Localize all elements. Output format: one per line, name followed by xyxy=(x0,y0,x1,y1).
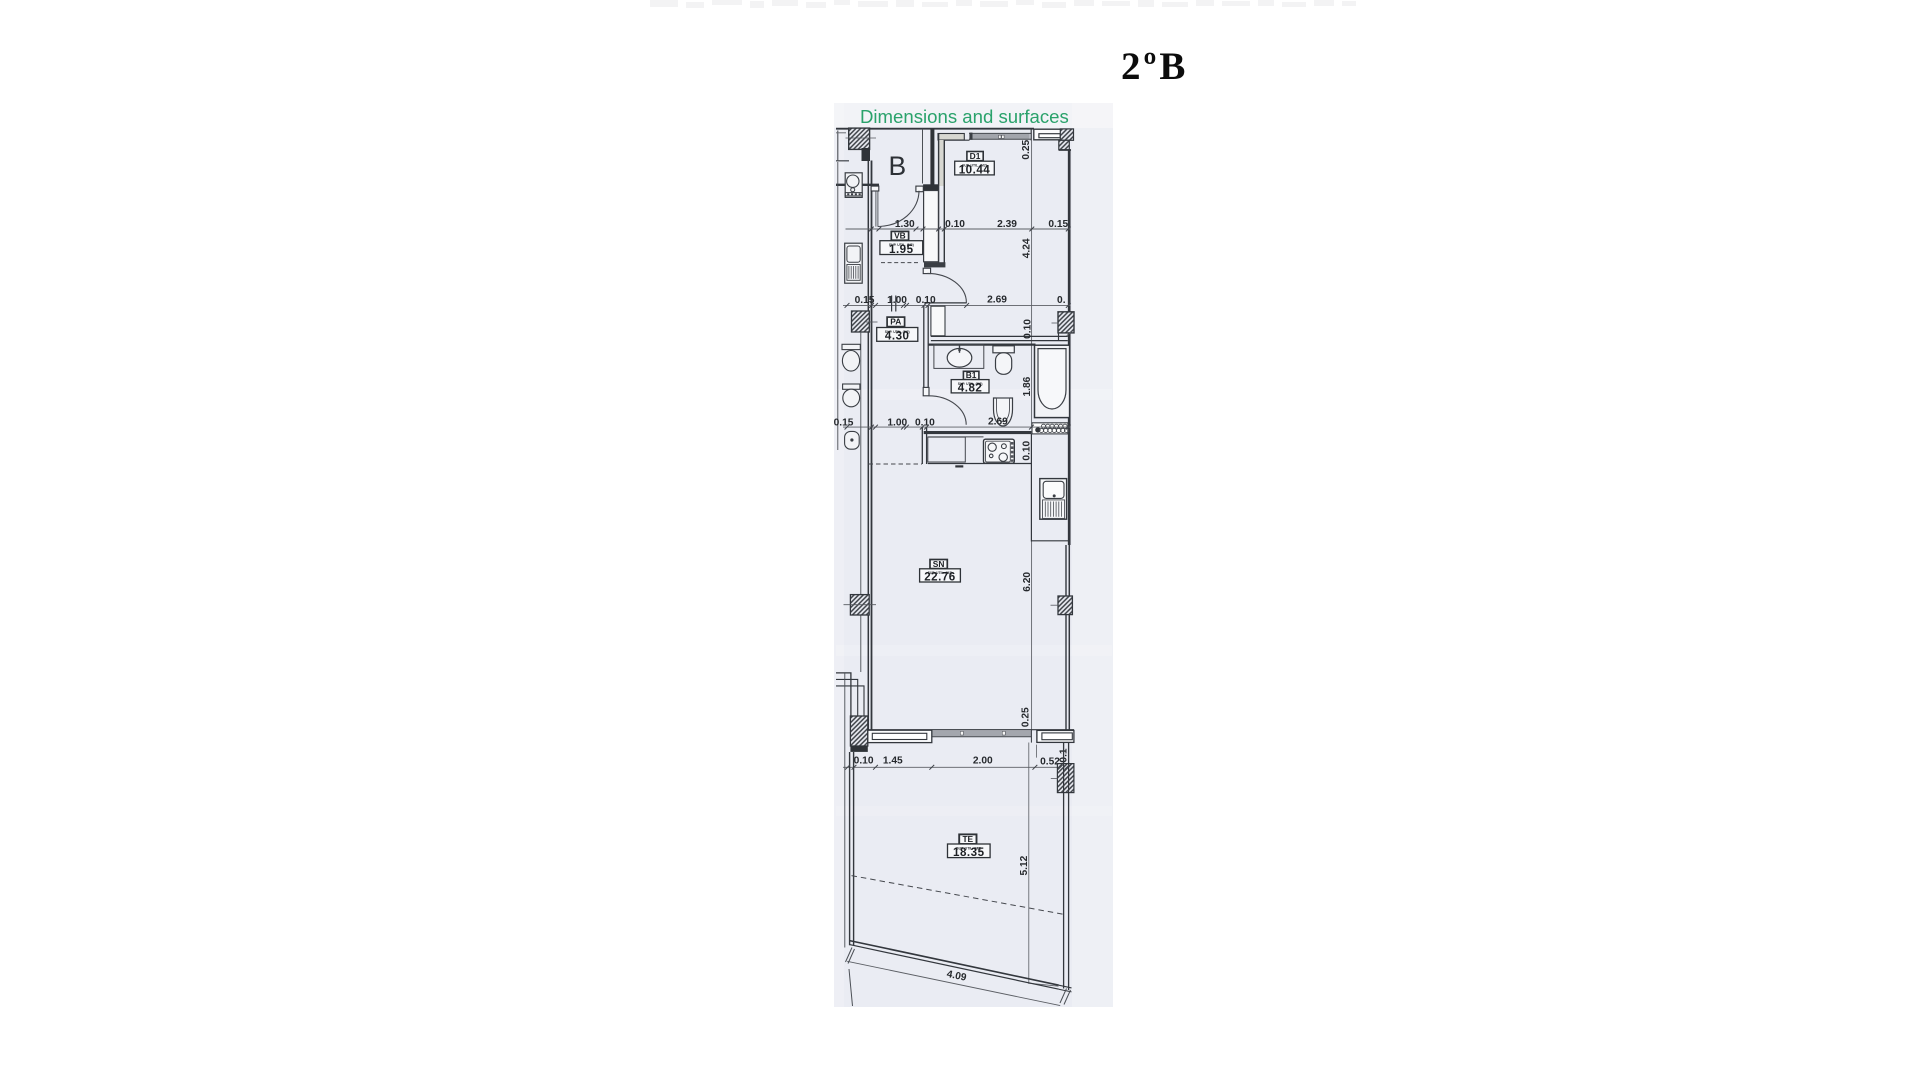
svg-text:2.00: 2.00 xyxy=(973,756,993,767)
svg-text:4.30: 4.30 xyxy=(885,330,910,343)
svg-text:2.69: 2.69 xyxy=(987,295,1007,306)
svg-text:B: B xyxy=(888,151,906,181)
svg-text:0.10: 0.10 xyxy=(945,219,965,230)
svg-text:2.39: 2.39 xyxy=(997,219,1017,230)
svg-text:SN: SN xyxy=(933,559,945,569)
svg-text:D1: D1 xyxy=(970,151,981,161)
svg-text:4.82: 4.82 xyxy=(958,381,983,394)
svg-text:0.10: 0.10 xyxy=(854,756,874,767)
svg-text:6.20: 6.20 xyxy=(1022,572,1033,592)
svg-text:1.86: 1.86 xyxy=(1022,376,1033,396)
svg-text:10.44: 10.44 xyxy=(959,163,991,176)
svg-text:5.12: 5.12 xyxy=(1019,855,1030,875)
svg-text:22.76: 22.76 xyxy=(924,571,956,584)
svg-text:Dimensions and surfaces: Dimensions and surfaces xyxy=(860,106,1069,127)
svg-text:2.69: 2.69 xyxy=(988,417,1008,428)
svg-text:0.15: 0.15 xyxy=(834,417,854,428)
svg-text:0.10: 0.10 xyxy=(915,417,935,428)
svg-text:PA: PA xyxy=(890,317,901,327)
svg-text:0.25: 0.25 xyxy=(1021,139,1032,159)
svg-text:TE: TE xyxy=(962,834,973,844)
svg-text:0.15: 0.15 xyxy=(855,295,875,306)
svg-text:0.15: 0.15 xyxy=(1048,219,1068,230)
svg-text:VB: VB xyxy=(894,231,906,241)
svg-text:4.24: 4.24 xyxy=(1021,238,1032,258)
svg-text:B1: B1 xyxy=(966,370,977,380)
svg-text:0.25: 0.25 xyxy=(1021,707,1032,727)
svg-text:2ºB: 2ºB xyxy=(1121,45,1188,88)
svg-text:1.30: 1.30 xyxy=(895,219,915,230)
svg-text:0.: 0. xyxy=(1057,295,1066,306)
svg-text:0.10: 0.10 xyxy=(916,295,936,306)
svg-text:0.10: 0.10 xyxy=(1022,319,1033,339)
svg-text:18.35: 18.35 xyxy=(953,846,985,859)
svg-text:1.45: 1.45 xyxy=(883,756,903,767)
svg-text:1.95: 1.95 xyxy=(889,243,914,256)
